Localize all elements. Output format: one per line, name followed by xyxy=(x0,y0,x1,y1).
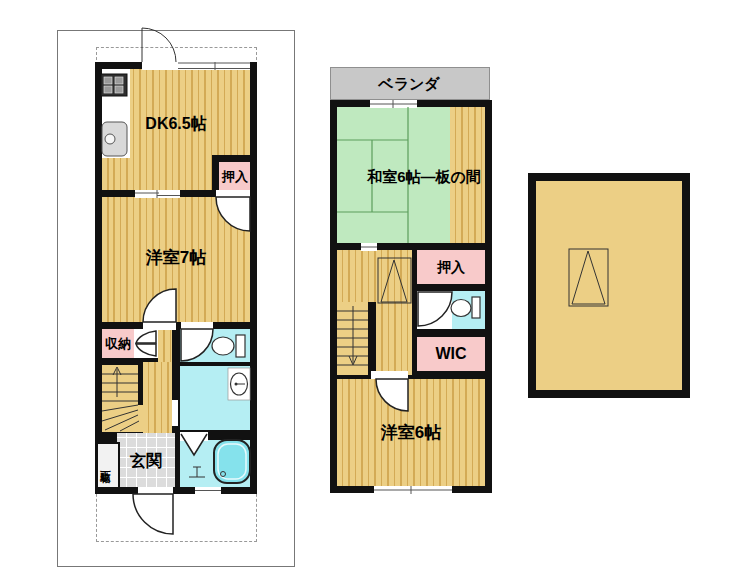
floor-plan-canvas: DK6.5帖 押入 洋室7帖 収納 玄関 下駄箱 ベランダ 和室6帖―板の間 押… xyxy=(0,0,747,580)
window-dk-top xyxy=(178,62,250,70)
window-washitsu-top xyxy=(370,100,417,108)
japanese-room-label: 和室6帖―板の間 xyxy=(367,169,481,184)
sliding-door-dk-western7 xyxy=(135,190,180,198)
entrance-door-opening xyxy=(138,487,173,495)
washroom xyxy=(180,366,250,430)
window-bath-bottom xyxy=(195,487,221,495)
hallway-lower xyxy=(143,362,172,433)
storage-folding-door-area xyxy=(134,329,158,358)
shoebox-label: 下駄箱 xyxy=(101,463,112,466)
toilet-room-1f xyxy=(180,329,250,362)
veranda-label: ベランダ xyxy=(378,76,439,91)
door-opening-washroom xyxy=(172,400,178,426)
storage-label: 収納 xyxy=(105,337,131,350)
attic-floor xyxy=(536,181,682,390)
door-opening-western6 xyxy=(371,371,408,379)
toilet-room-2f xyxy=(452,291,485,329)
bath-folding-door-opening xyxy=(180,432,208,441)
shoebox-getabako xyxy=(96,442,120,489)
door-opening-western7-hall xyxy=(143,322,176,330)
kitchen-counter xyxy=(102,69,130,158)
stairs-1f-winder xyxy=(138,405,143,432)
door-opening-toilet-1f xyxy=(181,322,213,330)
front-door-opening-top xyxy=(142,62,178,70)
entrance-label: 玄関 xyxy=(130,453,162,469)
stairs-2f xyxy=(337,302,368,375)
corridor-2f xyxy=(376,302,412,375)
wic-label: WIC xyxy=(435,346,466,362)
opening-washitsu-landing xyxy=(361,243,377,251)
room-dk-label: DK6.5帖 xyxy=(145,116,206,132)
closet-2f-label: 押入 xyxy=(437,260,465,274)
door-opening-dk-western7 xyxy=(216,190,250,198)
landing-2f xyxy=(337,250,412,302)
room-western6-label: 洋室6帖 xyxy=(381,424,441,441)
hallway-upper xyxy=(158,329,172,362)
closet-1f-label: 押入 xyxy=(222,170,248,183)
toilet-2f-door-area xyxy=(417,291,452,329)
bathroom xyxy=(180,440,250,487)
stairs-1f xyxy=(102,365,138,432)
room-western7-label: 洋室7帖 xyxy=(146,249,206,266)
window-western6-bottom xyxy=(374,486,452,494)
